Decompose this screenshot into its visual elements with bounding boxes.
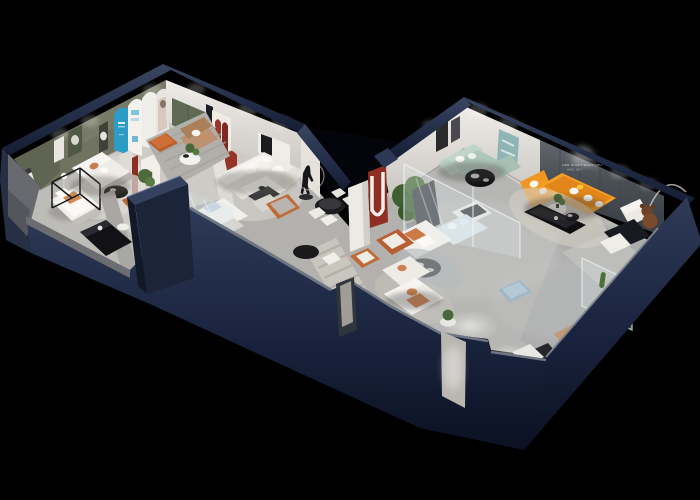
svg-text:HAVE · BUT: HAVE · BUT (567, 168, 582, 172)
svg-text:LIFE IS NOT WHAT YOU: LIFE IS NOT WHAT YOU (562, 163, 602, 167)
